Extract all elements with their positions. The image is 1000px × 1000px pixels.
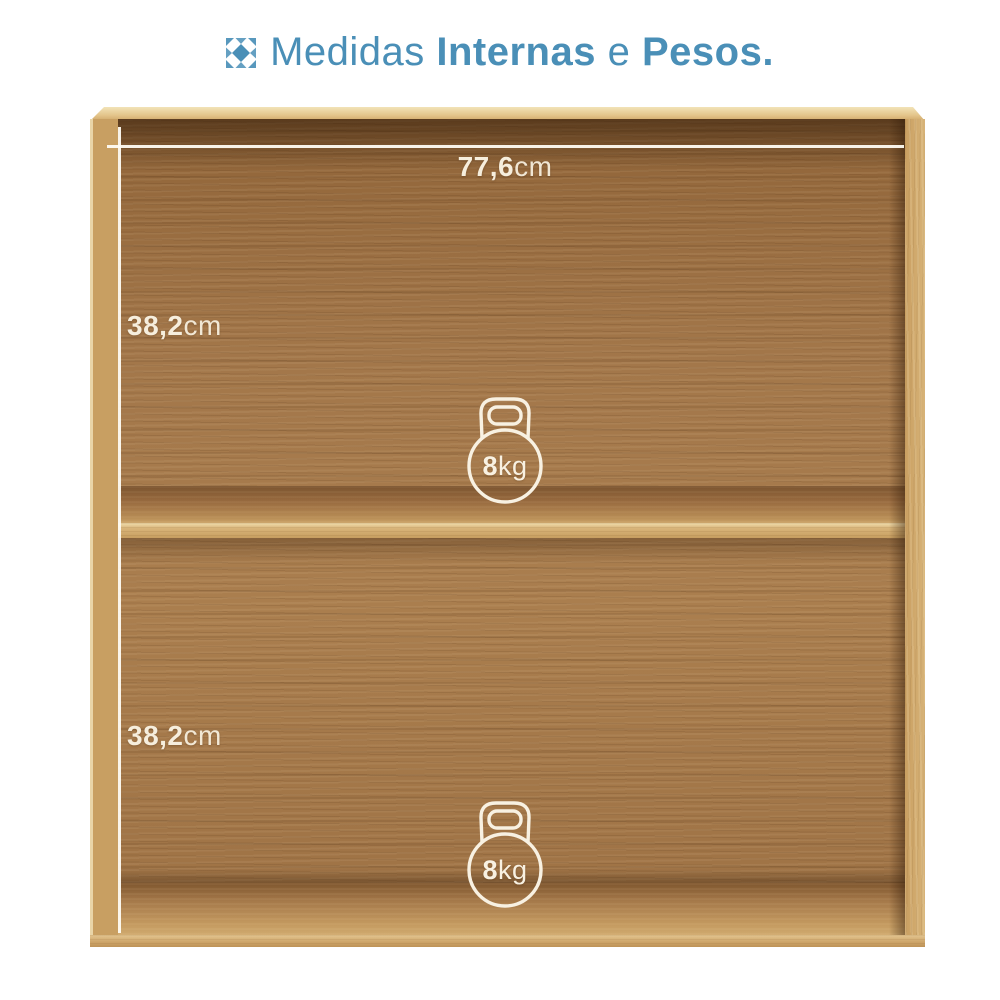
width-label: 77,6cm	[355, 151, 655, 183]
top-height-unit: cm	[184, 310, 222, 341]
top-weight-label: 8kg	[455, 451, 555, 482]
bottom-weight-value: 8	[482, 855, 498, 885]
bottom-shelf-height-label: 38,2cm	[127, 720, 222, 752]
bottom-height-value: 38,2	[127, 720, 184, 751]
top-shelf-height-label: 38,2cm	[127, 310, 222, 342]
width-measure-line	[107, 145, 904, 148]
top-weight-value: 8	[482, 451, 498, 481]
height-measure-line	[118, 127, 121, 933]
bottom-height-unit: cm	[184, 720, 222, 751]
width-unit: cm	[514, 151, 552, 182]
product-dimension-diagram: Medidas Internas e Pesos. 77,6cm 38,2cm	[0, 0, 1000, 1000]
bottom-weight-label: 8kg	[455, 855, 555, 886]
measurement-overlay: 77,6cm 38,2cm 38,2cm 8kg	[0, 0, 1000, 1000]
kettlebell-icon: 8kg	[455, 392, 555, 506]
width-value: 77,6	[458, 151, 515, 182]
bottom-weight-unit: kg	[498, 855, 528, 885]
kettlebell-icon: 8kg	[455, 796, 555, 910]
top-height-value: 38,2	[127, 310, 184, 341]
top-weight-unit: kg	[498, 451, 528, 481]
